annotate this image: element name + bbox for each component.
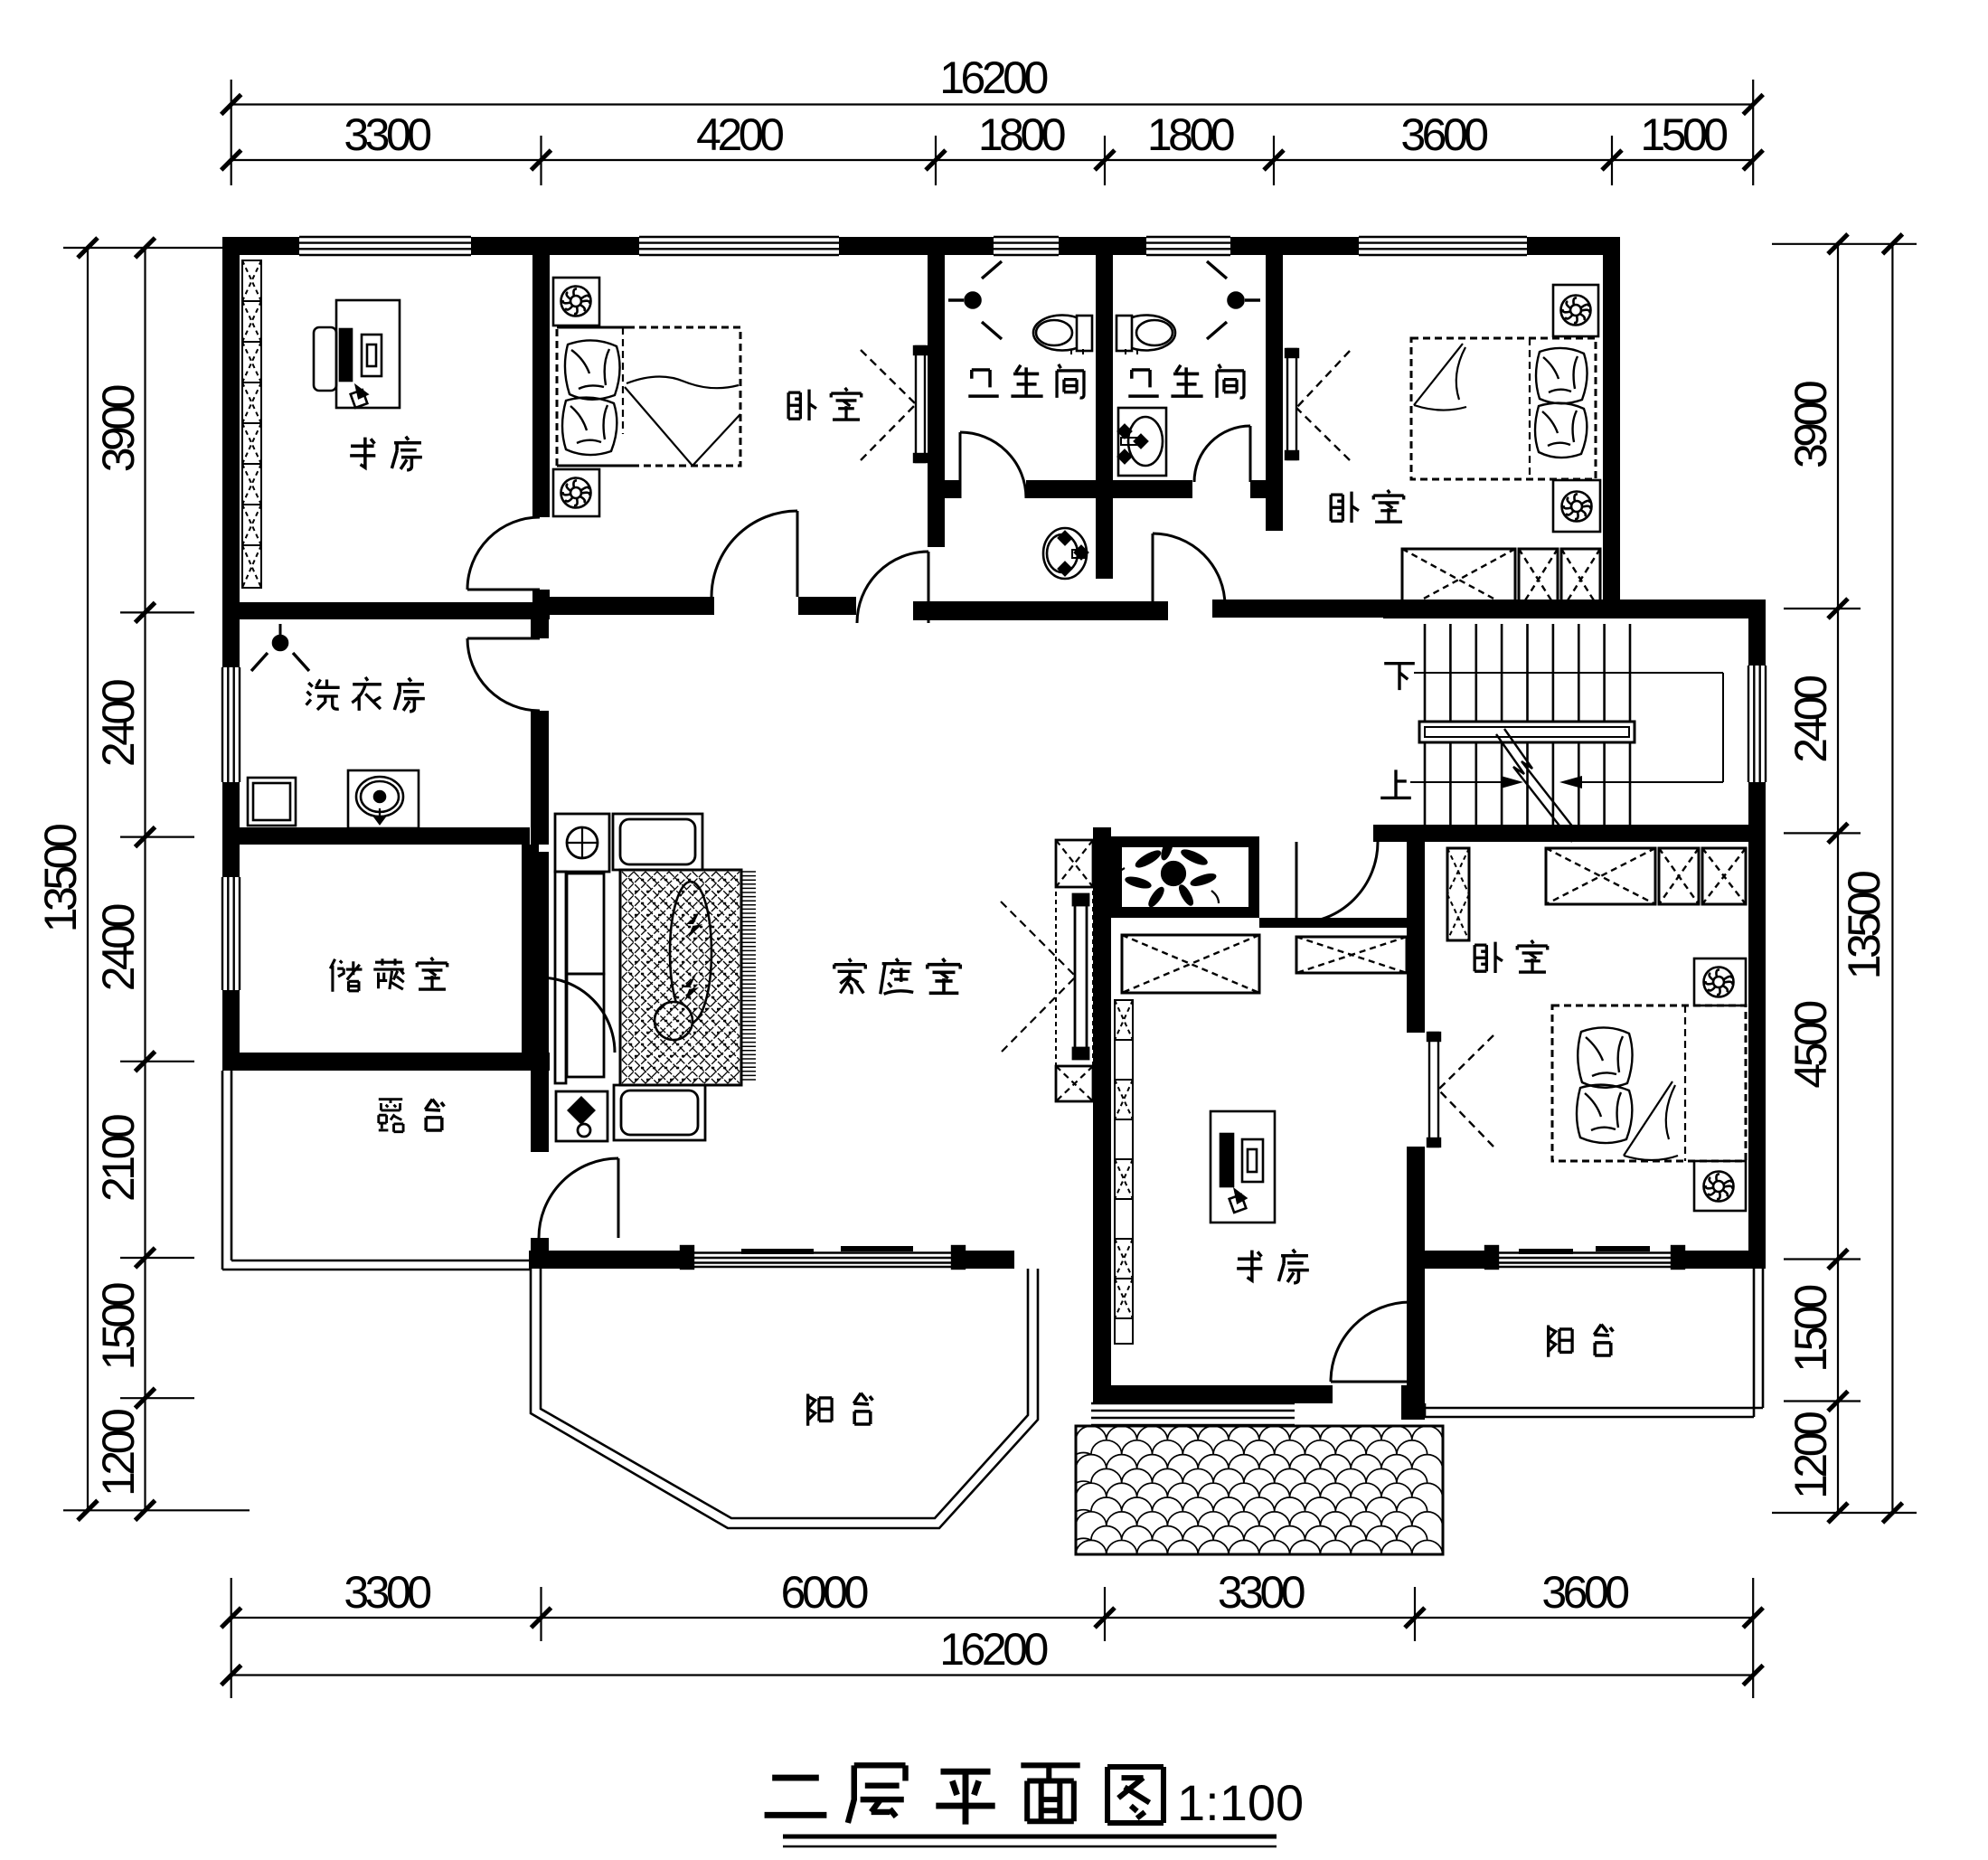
svg-text:4500: 4500 — [1785, 1002, 1836, 1089]
svg-text:2100: 2100 — [93, 1115, 144, 1202]
svg-text:1800: 1800 — [978, 109, 1065, 160]
svg-text:2400: 2400 — [93, 904, 144, 991]
svg-text:3900: 3900 — [1785, 382, 1836, 468]
svg-text:3300: 3300 — [344, 109, 430, 160]
svg-text:1200: 1200 — [1785, 1412, 1836, 1499]
svg-text:1800: 1800 — [1147, 109, 1234, 160]
svg-text:13500: 13500 — [1839, 872, 1889, 979]
svg-text:3900: 3900 — [93, 385, 144, 472]
svg-text:6000: 6000 — [781, 1567, 868, 1618]
svg-text:3300: 3300 — [344, 1567, 430, 1618]
svg-text:1500: 1500 — [93, 1283, 144, 1370]
svg-text:1500: 1500 — [1785, 1286, 1836, 1373]
svg-text:16200: 16200 — [939, 52, 1047, 103]
svg-text:4200: 4200 — [696, 109, 783, 160]
svg-text:1500: 1500 — [1640, 109, 1727, 160]
svg-text:3600: 3600 — [1541, 1567, 1628, 1618]
svg-text:13500: 13500 — [35, 825, 86, 932]
svg-text:2400: 2400 — [1785, 676, 1836, 763]
svg-text:1200: 1200 — [93, 1410, 144, 1496]
svg-text:1:100: 1:100 — [1177, 1774, 1304, 1831]
svg-text:3600: 3600 — [1400, 109, 1487, 160]
svg-text:2400: 2400 — [93, 680, 144, 767]
svg-text:16200: 16200 — [939, 1624, 1047, 1675]
svg-text:3300: 3300 — [1218, 1567, 1305, 1618]
